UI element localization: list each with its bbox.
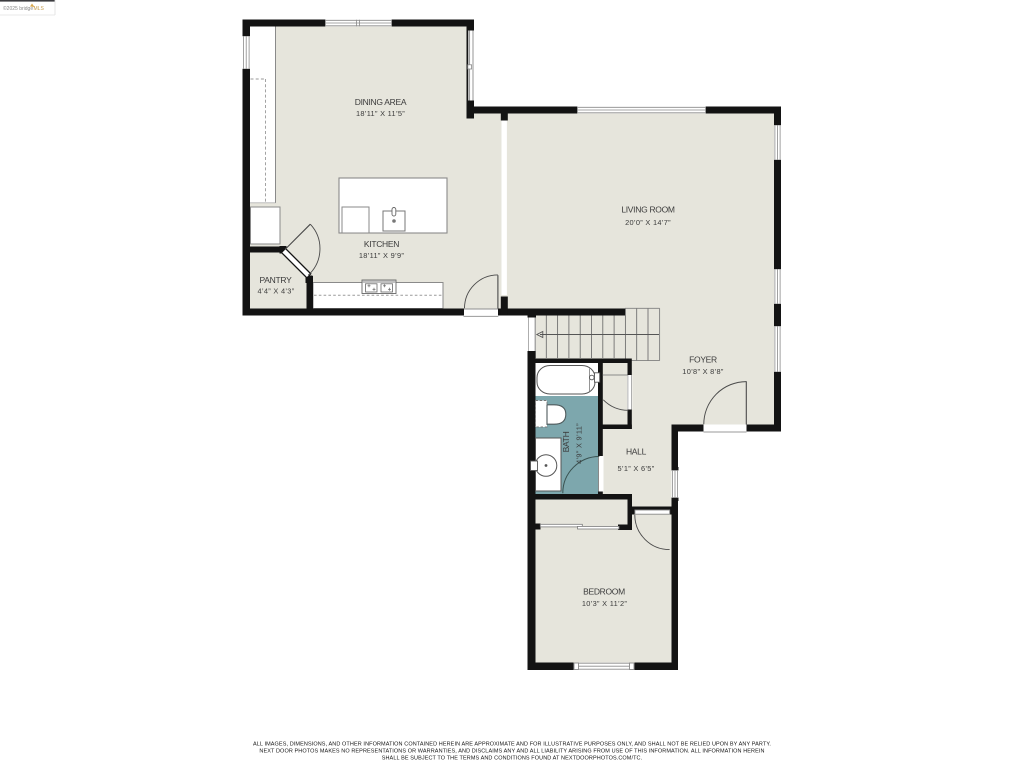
svg-text:FOYER: FOYER [689,355,717,365]
svg-text:BEDROOM: BEDROOM [583,587,625,597]
svg-text:DINING AREA: DINING AREA [355,97,407,107]
svg-text:10’8” X 8’8”: 10’8” X 8’8” [682,367,724,376]
svg-text:18’11” X 9’9”: 18’11” X 9’9” [359,251,404,260]
svg-text:10’3” X 11’2”: 10’3” X 11’2” [582,599,627,608]
svg-text:NEXT DOOR PHOTOS MAKES NO REPR: NEXT DOOR PHOTOS MAKES NO REPRESENTATION… [259,749,764,755]
svg-text:SHALL BE SUBJECT TO THE TERMS: SHALL BE SUBJECT TO THE TERMS AND CONDIT… [382,756,643,762]
svg-text:ALL IMAGES, DIMENSIONS, AND OT: ALL IMAGES, DIMENSIONS, AND OTHER INFORM… [253,742,771,748]
svg-text:4’4” X 4’3”: 4’4” X 4’3” [258,287,295,296]
svg-text:HALL: HALL [626,447,647,457]
svg-text:KITCHEN: KITCHEN [364,239,399,249]
svg-text:©2025 bridge: ©2025 bridge [3,5,33,12]
svg-text:4’9” X 9’11”: 4’9” X 9’11” [575,423,584,464]
svg-text:LIVING ROOM: LIVING ROOM [621,205,675,215]
svg-text:PANTRY: PANTRY [260,275,293,285]
svg-text:MLS: MLS [34,6,45,12]
svg-text:20’0” X 14’7”: 20’0” X 14’7” [625,218,671,227]
svg-text:18’11” X 11’5”: 18’11” X 11’5” [356,109,405,118]
svg-text:BATH: BATH [561,431,571,452]
svg-text:5’1” X 6’5”: 5’1” X 6’5” [618,464,655,473]
